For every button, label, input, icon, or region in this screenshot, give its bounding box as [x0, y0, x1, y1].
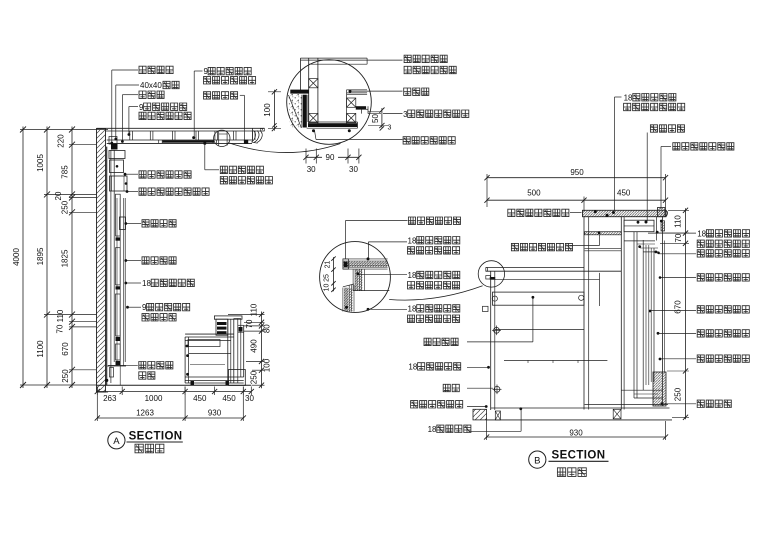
svg-text:18: 18 [408, 271, 417, 280]
svg-text:785: 785 [61, 165, 70, 179]
svg-text:450: 450 [193, 394, 207, 403]
svg-text:18: 18 [142, 279, 151, 288]
svg-text:50: 50 [371, 114, 380, 123]
svg-text:30: 30 [349, 165, 358, 174]
svg-text:4000: 4000 [12, 248, 21, 266]
svg-text:250: 250 [61, 200, 70, 214]
svg-text:1825: 1825 [61, 249, 70, 267]
svg-text:450: 450 [222, 394, 236, 403]
svg-text:A: A [113, 436, 120, 447]
svg-text:250: 250 [250, 370, 259, 384]
svg-text:450: 450 [617, 189, 631, 198]
svg-text:80: 80 [263, 324, 272, 333]
svg-text:18: 18 [624, 93, 633, 102]
svg-text:18: 18 [697, 230, 706, 239]
svg-text:1000: 1000 [145, 394, 163, 403]
svg-text:70: 70 [674, 233, 683, 242]
svg-text:3: 3 [260, 127, 267, 131]
svg-text:20: 20 [54, 191, 63, 200]
svg-text:3: 3 [388, 125, 392, 132]
svg-text:930: 930 [208, 409, 222, 418]
svg-text:1895: 1895 [36, 247, 45, 265]
svg-text:40x40: 40x40 [140, 81, 162, 90]
svg-text:250: 250 [674, 387, 683, 401]
svg-text:SECTION: SECTION [552, 450, 606, 462]
svg-text:263: 263 [103, 394, 117, 403]
svg-text:18: 18 [408, 363, 417, 372]
svg-text:110: 110 [674, 215, 683, 228]
svg-text:B: B [534, 455, 540, 466]
svg-text:10: 10 [324, 284, 331, 292]
svg-text:500: 500 [527, 189, 541, 198]
svg-text:18: 18 [428, 425, 437, 434]
svg-text:70: 70 [245, 319, 254, 328]
svg-text:100: 100 [263, 103, 272, 117]
svg-text:18: 18 [408, 305, 417, 314]
svg-text:SECTION: SECTION [129, 430, 183, 442]
svg-text:950: 950 [570, 168, 584, 177]
svg-text:30: 30 [245, 394, 254, 403]
svg-text:90: 90 [326, 153, 335, 162]
svg-text:670: 670 [61, 342, 70, 356]
svg-text:670: 670 [674, 300, 683, 314]
svg-text:70: 70 [56, 324, 65, 333]
svg-text:1100: 1100 [36, 340, 45, 358]
svg-text:30: 30 [307, 165, 316, 174]
svg-text:25: 25 [324, 274, 331, 282]
svg-text:18: 18 [408, 236, 417, 245]
svg-text:21: 21 [325, 261, 332, 269]
svg-text:220: 220 [57, 134, 66, 148]
svg-text:250: 250 [61, 369, 70, 383]
svg-text:1005: 1005 [36, 154, 45, 172]
svg-text:1263: 1263 [136, 409, 154, 418]
svg-text:110: 110 [56, 309, 65, 322]
svg-text:490: 490 [250, 339, 259, 353]
svg-text:930: 930 [569, 428, 583, 437]
